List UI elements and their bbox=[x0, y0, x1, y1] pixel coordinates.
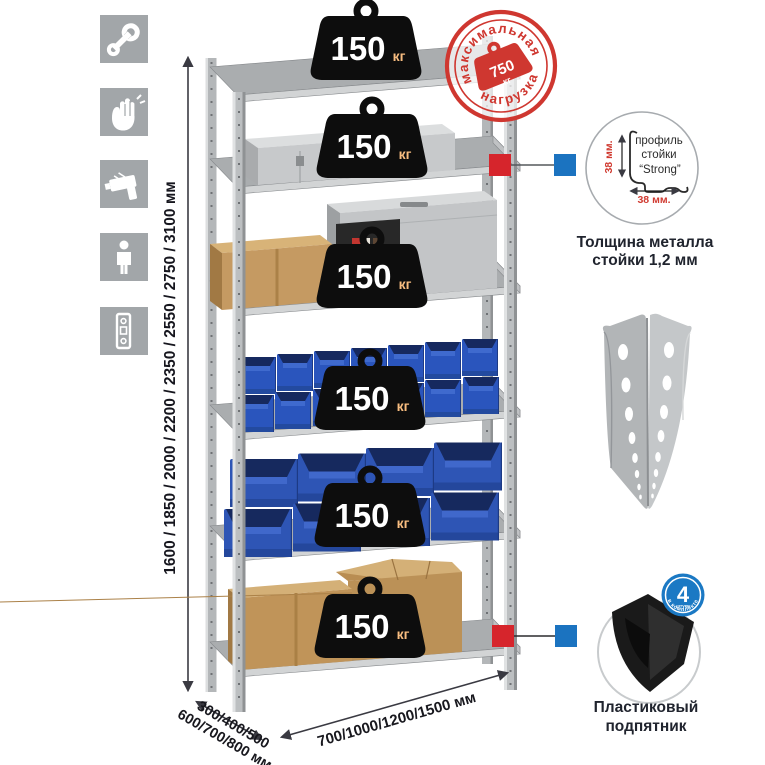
load-value: 150 bbox=[334, 608, 389, 645]
gloves-icon bbox=[100, 88, 148, 136]
load-value: 150 bbox=[336, 258, 391, 295]
profile-callout-connector bbox=[489, 154, 576, 176]
thickness-caption-line2: стойки 1,2 мм bbox=[592, 252, 697, 269]
load-unit: кг bbox=[399, 146, 412, 162]
foot-callout-connector bbox=[492, 625, 577, 647]
blue-marker-top bbox=[554, 154, 576, 176]
diagram-svg: 1600 / 1850 / 2000 / 2200 / 2350 / 2550 … bbox=[0, 0, 765, 765]
corner-post-profile-image bbox=[603, 314, 692, 509]
load-unit: кг bbox=[393, 48, 406, 64]
cardboard-box-shelf3 bbox=[210, 235, 332, 310]
storage-bin bbox=[277, 354, 313, 391]
cardboard-box-front bbox=[0, 580, 352, 670]
load-value: 150 bbox=[334, 497, 389, 534]
profile-label-2: стойки bbox=[641, 149, 676, 161]
foot-caption-line2: подпятник bbox=[605, 718, 686, 735]
max-load-stamp: максимальная нагрузка 750 кг bbox=[431, 0, 572, 136]
plastic-foot-detail: 4 штуки в комплекте bbox=[598, 574, 705, 704]
weight-badge-1: 150 кг bbox=[311, 2, 422, 80]
load-value: 150 bbox=[330, 30, 385, 67]
drill-icon bbox=[100, 160, 148, 208]
weight-badge-2: 150 кг bbox=[317, 100, 428, 178]
height-dimension-label: 1600 / 1850 / 2000 / 2200 / 2350 / 2550 … bbox=[162, 181, 179, 575]
storage-bin bbox=[425, 342, 461, 379]
profile-label-3: “Strong” bbox=[639, 164, 681, 176]
foot-caption-line1: Пластиковый bbox=[594, 699, 699, 716]
product-diagram-shelving-unit: 1600 / 1850 / 2000 / 2200 / 2350 / 2550 … bbox=[0, 0, 765, 765]
red-marker-top bbox=[489, 154, 511, 176]
profile-dim-vertical: 38 мм. bbox=[603, 140, 615, 173]
load-unit: кг bbox=[397, 515, 410, 531]
quantity-badge: 4 штуки в комплекте bbox=[662, 574, 705, 617]
shelf-load-badges: 150 кг 150 кг 150 кг 150 кг 150 кг bbox=[311, 2, 428, 658]
blue-marker-bottom bbox=[555, 625, 577, 647]
load-value: 150 bbox=[336, 128, 391, 165]
thickness-caption-line1: Толщина металла bbox=[577, 234, 714, 251]
storage-bin bbox=[425, 380, 461, 417]
depth-dimension: 300/400/500 600/700/800 мм bbox=[175, 692, 283, 765]
profile-dim-horizontal: 38 мм. bbox=[637, 194, 670, 206]
load-unit: кг bbox=[397, 626, 410, 642]
storage-bin bbox=[431, 493, 499, 541]
height-dimension: 1600 / 1850 / 2000 / 2200 / 2350 / 2550 … bbox=[162, 58, 188, 690]
load-unit: кг bbox=[397, 398, 410, 414]
red-marker-bottom bbox=[492, 625, 514, 647]
assembly-icons bbox=[100, 15, 148, 355]
profile-detail-circle: 38 мм. 38 мм. профиль стойки “Strong” bbox=[586, 112, 698, 224]
load-value: 150 bbox=[334, 380, 389, 417]
storage-bin bbox=[463, 377, 499, 414]
storage-bin bbox=[434, 443, 502, 491]
spirit-level-icon bbox=[100, 307, 148, 355]
width-dimension-label: 700/1000/1200/1500 мм bbox=[316, 689, 478, 751]
load-unit: кг bbox=[399, 276, 412, 292]
rack-illustration bbox=[0, 36, 520, 712]
storage-bin bbox=[275, 392, 311, 429]
profile-label-1: профиль bbox=[635, 135, 683, 147]
wrench-icon bbox=[100, 15, 148, 63]
person-height-icon bbox=[100, 233, 148, 281]
width-dimension: 700/1000/1200/1500 мм bbox=[282, 673, 507, 750]
storage-bin bbox=[462, 339, 498, 376]
